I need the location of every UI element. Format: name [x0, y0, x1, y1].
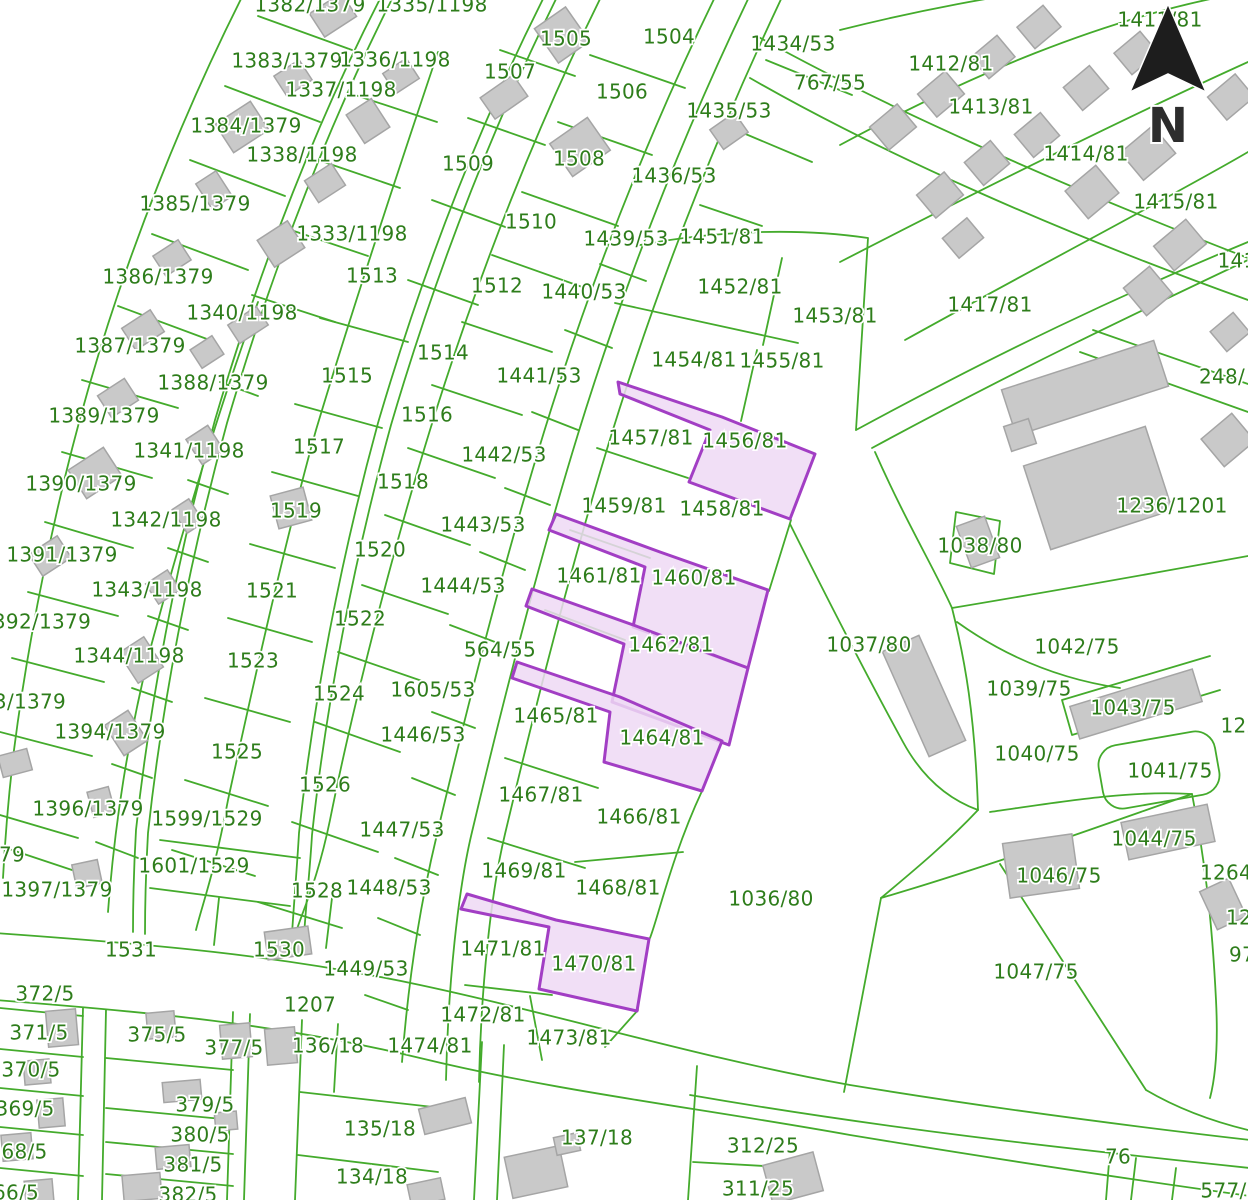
parcel-label-1519: 1519 — [270, 499, 322, 523]
parcel-label-1435-53: 1435/53 — [686, 99, 771, 123]
parcel-label-1446-53: 1446/53 — [380, 723, 465, 747]
parcel-label-1473-81: 1473/81 — [526, 1026, 611, 1050]
parcel-label-1444-53: 1444/53 — [420, 574, 505, 598]
parcel-label-1470-81: 1470/81 — [551, 952, 636, 976]
parcel-label-1342-1198: 1342/1198 — [110, 508, 221, 532]
parcel-label-1042-75: 1042/75 — [1034, 635, 1119, 659]
parcel-label-1046-75: 1046/75 — [1016, 864, 1101, 888]
parcel-label-1517: 1517 — [293, 435, 345, 459]
parcel-label-1044-75: 1044/75 — [1111, 827, 1196, 851]
parcel-label-66-5: 66/5 — [0, 1181, 39, 1200]
parcel-label-1037-80: 1037/80 — [826, 633, 911, 657]
parcel-label-1469-81: 1469/81 — [481, 859, 566, 883]
parcel-label-136-18: 136/18 — [292, 1034, 364, 1058]
parcel-label-1340-1198: 1340/1198 — [186, 301, 297, 325]
parcel-label-1441-53: 1441/53 — [496, 364, 581, 388]
parcel-label-1397-1379: 1397/1379 — [1, 878, 112, 902]
parcel-label-1391-1379: 1391/1379 — [6, 543, 117, 567]
building-footprint — [1208, 74, 1248, 120]
parcel-label-1412-81: 1412/81 — [908, 52, 993, 76]
parcel-label-1447-53: 1447/53 — [359, 818, 444, 842]
parcel-label-1414-81: 1414/81 — [1043, 142, 1128, 166]
parcel-label-1467-81: 1467/81 — [498, 783, 583, 807]
parcel-label-97: 97 — [1229, 943, 1248, 967]
parcel-label-1436-53: 1436/53 — [631, 164, 716, 188]
parcel-label-1382-1379: 1382/1379 — [254, 0, 365, 17]
parcel-label-1531: 1531 — [105, 938, 157, 962]
parcel-label-1508: 1508 — [553, 147, 605, 171]
parcel-label-141: 141 — [1217, 249, 1248, 273]
cadastral-map[interactable]: 1382/13791335/11981411/81150515041434/53… — [0, 0, 1248, 1200]
parcel-label-3-1379: 3/1379 — [0, 690, 66, 714]
building-footprint — [0, 748, 32, 777]
parcel-label-1415-81: 1415/81 — [1133, 190, 1218, 214]
parcel-label-1525: 1525 — [211, 740, 263, 764]
parcel-label-372-5: 372/5 — [15, 982, 74, 1006]
parcel-label-1526: 1526 — [299, 773, 351, 797]
parcel-label-1509: 1509 — [442, 152, 494, 176]
parcel-label-1460-81: 1460/81 — [651, 566, 736, 590]
building-footprint — [346, 99, 390, 144]
parcel-label-1465-81: 1465/81 — [513, 704, 598, 728]
parcel-label-767-55: 767/55 — [794, 71, 866, 95]
parcel-label-1343-1198: 1343/1198 — [91, 578, 202, 602]
parcel-label-1528: 1528 — [291, 879, 343, 903]
parcel-label-1396-1379: 1396/1379 — [32, 797, 143, 821]
building-footprint — [419, 1098, 472, 1135]
parcel-label-1337-1198: 1337/1198 — [285, 78, 396, 102]
parcel-label-1518: 1518 — [377, 470, 429, 494]
parcel-label-375-5: 375/5 — [127, 1023, 186, 1047]
parcel-label-1417-81: 1417/81 — [947, 293, 1032, 317]
building-footprint — [407, 1178, 445, 1200]
parcel-label-1394-1379: 1394/1379 — [54, 720, 165, 744]
parcel-label-1236-1201: 1236/1201 — [1116, 494, 1227, 518]
parcel-label-1464-81: 1464/81 — [619, 726, 704, 750]
parcel-label-1443-53: 1443/53 — [440, 513, 525, 537]
parcel-label-1506: 1506 — [596, 80, 648, 104]
parcel-label-122: 122 — [1220, 714, 1248, 738]
parcel-label-1461-81: 1461/81 — [556, 564, 641, 588]
parcel-label-1462-81: 1462/81 — [628, 633, 713, 657]
parcel-label-1524: 1524 — [313, 682, 365, 706]
parcel-labels-layer: 1382/13791335/11981411/81150515041434/53… — [0, 0, 1248, 1200]
building-footprint — [1063, 66, 1108, 111]
parcel-label-1344-1198: 1344/1198 — [73, 644, 184, 668]
building-footprint — [1123, 266, 1172, 315]
parcel-label-368-5: 368/5 — [0, 1140, 48, 1164]
parcel-label-371-5: 371/5 — [9, 1021, 68, 1045]
parcel-label-311-25: 311/25 — [722, 1177, 794, 1200]
parcel-label-1449-53: 1449/53 — [323, 957, 408, 981]
parcel-label-1041-75: 1041/75 — [1127, 759, 1212, 783]
building-footprint — [190, 336, 224, 369]
parcel-label-1338-1198: 1338/1198 — [246, 143, 357, 167]
parcel-label-1038-80: 1038/80 — [937, 534, 1022, 558]
parcel-label-1459-81: 1459/81 — [581, 494, 666, 518]
parcel-label-1442-53: 1442/53 — [461, 443, 546, 467]
building-footprint — [305, 163, 346, 202]
highlighted-parcels-layer — [461, 382, 815, 1011]
parcel-label-1264: 1264 — [1200, 861, 1248, 885]
parcel-label-12: 12 — [1226, 906, 1248, 930]
parcel-label-1505: 1505 — [540, 27, 592, 51]
parcel-label-312-25: 312/25 — [727, 1134, 799, 1158]
parcel-label-1457-81: 1457/81 — [608, 426, 693, 450]
parcel-label-76: 76 — [1105, 1145, 1131, 1169]
parcel-label-1468-81: 1468/81 — [575, 876, 660, 900]
parcel-label-1388-1379: 1388/1379 — [157, 371, 268, 395]
parcel-label-1386-1379: 1386/1379 — [102, 265, 213, 289]
parcel-label-1515: 1515 — [321, 364, 373, 388]
parcel-label-134-18: 134/18 — [336, 1165, 408, 1189]
parcel-label-377-5: 377/5 — [204, 1036, 263, 1060]
parcel-label-380-5: 380/5 — [170, 1123, 229, 1147]
building-footprint — [942, 218, 983, 258]
parcel-label-1516: 1516 — [401, 403, 453, 427]
parcel-label-1601-1529: 1601/1529 — [138, 854, 249, 878]
parcel-label-381-5: 381/5 — [163, 1153, 222, 1177]
parcel-label-1336-1198: 1336/1198 — [339, 48, 450, 72]
parcel-label-248-: 248/ — [1199, 365, 1245, 389]
parcel-label-1466-81: 1466/81 — [596, 805, 681, 829]
parcel-label-1530: 1530 — [253, 938, 305, 962]
parcel-label-379-5: 379/5 — [175, 1093, 234, 1117]
parcel-label-1384-1379: 1384/1379 — [190, 114, 301, 138]
parcel-label-1453-81: 1453/81 — [792, 304, 877, 328]
cadastral-map-viewport[interactable]: 1382/13791335/11981411/81150515041434/53… — [0, 0, 1248, 1200]
parcel-label-1440-53: 1440/53 — [541, 280, 626, 304]
parcel-label-1036-80: 1036/80 — [728, 887, 813, 911]
parcel-label-1390-1379: 1390/1379 — [25, 472, 136, 496]
parcel-label-1605-53: 1605/53 — [390, 678, 475, 702]
parcel-label-564-55: 564/55 — [464, 638, 536, 662]
parcel-label-1439-53: 1439/53 — [583, 227, 668, 251]
parcel-label-1047-75: 1047/75 — [993, 960, 1078, 984]
parcel-label-1434-53: 1434/53 — [750, 32, 835, 56]
parcel-label-1512: 1512 — [471, 274, 523, 298]
parcel-label-1333-1198: 1333/1198 — [296, 222, 407, 246]
parcel-label-1458-81: 1458/81 — [679, 497, 764, 521]
building-footprint — [1017, 5, 1061, 48]
parcel-label-370-5: 370/5 — [1, 1058, 60, 1082]
parcel-label-1452-81: 1452/81 — [697, 275, 782, 299]
parcel-label-369-5: 369/5 — [0, 1097, 55, 1121]
parcel-label-135-18: 135/18 — [344, 1117, 416, 1141]
parcel-label-1599-1529: 1599/1529 — [151, 807, 262, 831]
building-footprint — [122, 1172, 162, 1200]
parcel-label-1043-75: 1043/75 — [1090, 696, 1175, 720]
parcel-label-577-5: 577/5 — [1200, 1179, 1248, 1200]
building-footprint — [1210, 312, 1248, 351]
parcel-label-382-5: 382/5 — [158, 1183, 217, 1200]
building-footprint — [870, 104, 917, 150]
parcel-label-1039-75: 1039/75 — [986, 677, 1071, 701]
parcel-label-1474-81: 1474/81 — [387, 1034, 472, 1058]
parcel-label-1387-1379: 1387/1379 — [74, 334, 185, 358]
parcel-label-1521: 1521 — [246, 579, 298, 603]
building-footprint — [1024, 426, 1173, 549]
parcel-label-1385-1379: 1385/1379 — [139, 192, 250, 216]
building-footprint — [1065, 165, 1119, 218]
parcel-label-1456-81: 1456/81 — [702, 429, 787, 453]
parcel-label-1413-81: 1413/81 — [948, 95, 1033, 119]
parcel-label-1514: 1514 — [417, 341, 469, 365]
parcel-label-79: 79 — [0, 843, 25, 867]
parcel-label-1451-81: 1451/81 — [679, 225, 764, 249]
parcel-label-1040-75: 1040/75 — [994, 742, 1079, 766]
parcel-label-1523: 1523 — [227, 649, 279, 673]
building-footprint — [917, 172, 964, 218]
parcel-label-1471-81: 1471/81 — [460, 937, 545, 961]
parcel-label-1389-1379: 1389/1379 — [48, 404, 159, 428]
parcel-label-1341-1198: 1341/1198 — [133, 439, 244, 463]
parcel-label-1520: 1520 — [354, 538, 406, 562]
parcel-label-1207: 1207 — [284, 993, 336, 1017]
parcel-label-1448-53: 1448/53 — [346, 876, 431, 900]
parcel-label-1383-1379: 1383/1379 — [231, 49, 342, 73]
parcel-label-1335-1198: 1335/1198 — [376, 0, 487, 17]
parcel-label-1510: 1510 — [505, 210, 557, 234]
parcel-label-1455-81: 1455/81 — [739, 349, 824, 373]
parcel-label-1513: 1513 — [346, 264, 398, 288]
parcel-label-1507: 1507 — [484, 60, 536, 84]
north-label: N — [1148, 98, 1188, 154]
parcel-label-137-18: 137/18 — [561, 1126, 633, 1150]
parcel-label-1472-81: 1472/81 — [440, 1003, 525, 1027]
parcel-label-1454-81: 1454/81 — [651, 348, 736, 372]
parcel-label-392-1379: 392/1379 — [0, 610, 91, 634]
parcel-label-1522: 1522 — [334, 607, 386, 631]
building-footprint — [1201, 413, 1248, 466]
parcel-label-1504: 1504 — [643, 25, 695, 49]
